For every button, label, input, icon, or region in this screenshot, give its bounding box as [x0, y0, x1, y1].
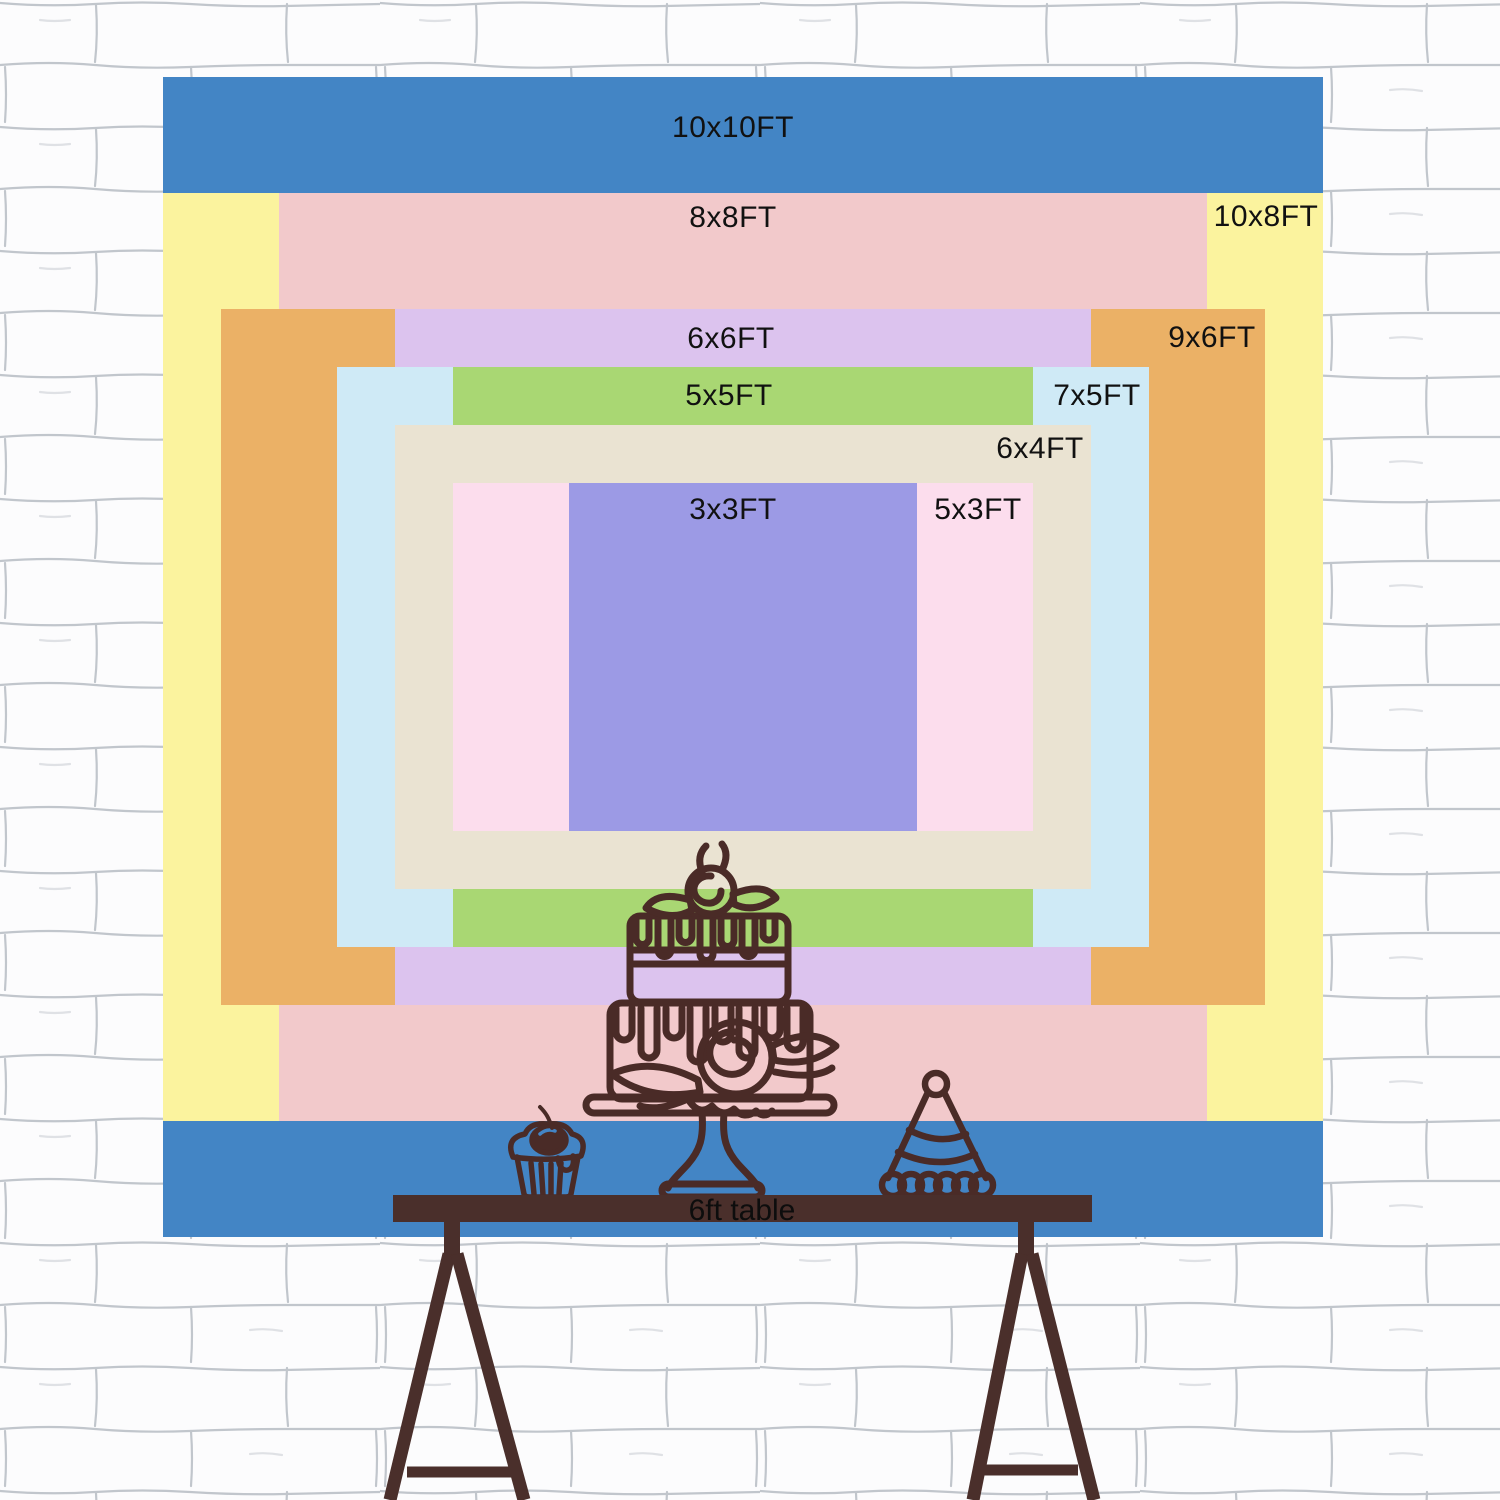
label-10x8: 10x8FT — [1214, 200, 1319, 234]
label-6x4: 6x4FT — [996, 432, 1084, 466]
label-6x6: 6x6FT — [687, 322, 775, 356]
label-9x6: 9x6FT — [1168, 321, 1256, 355]
table-size-label: 6ft table — [689, 1194, 796, 1228]
label-8x8: 8x8FT — [689, 201, 777, 235]
label-3x3: 3x3FT — [689, 493, 777, 527]
label-5x3: 5x3FT — [934, 493, 1022, 527]
label-10x10: 10x10FT — [672, 111, 794, 145]
label-5x5: 5x5FT — [685, 379, 773, 413]
backdrop-size-chart: 10x10FT 8x8FT 10x8FT 6x6FT 9x6FT 5x5FT 7… — [163, 77, 1323, 1237]
label-7x5: 7x5FT — [1053, 379, 1141, 413]
rect-3x3 — [569, 483, 917, 831]
